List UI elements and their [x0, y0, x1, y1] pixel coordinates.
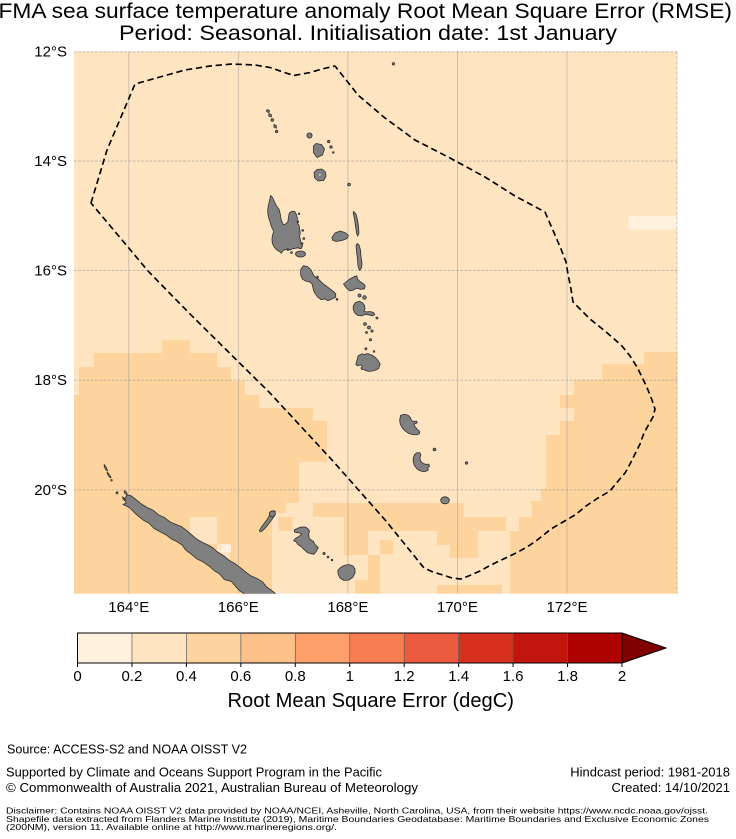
svg-text:1.6: 1.6 [503, 668, 524, 685]
svg-text:0: 0 [73, 668, 81, 685]
svg-text:16°S: 16°S [34, 263, 67, 280]
svg-text:0.4: 0.4 [176, 668, 197, 685]
svg-text:0.8: 0.8 [285, 668, 306, 685]
svg-text:Hindcast period: 1981-2018: Hindcast period: 1981-2018 [570, 764, 730, 779]
svg-text:Created: 14/10/2021: Created: 14/10/2021 [611, 780, 730, 795]
svg-text:FMA sea surface temperature an: FMA sea surface temperature anomaly Root… [0, 0, 732, 23]
svg-text:14°S: 14°S [34, 153, 67, 170]
svg-text:20°S: 20°S [34, 482, 67, 499]
svg-text:1.4: 1.4 [448, 668, 469, 685]
svg-text:1: 1 [346, 668, 354, 685]
svg-text:Supported by Climate and Ocean: Supported by Climate and Oceans Support … [6, 764, 382, 779]
svg-text:(200NM), version 11. Available: (200NM), version 11. Available online at… [6, 822, 337, 832]
svg-text:166°E: 166°E [218, 599, 259, 616]
svg-text:12°S: 12°S [34, 44, 67, 61]
svg-text:Root Mean Square Error (degC): Root Mean Square Error (degC) [228, 690, 515, 712]
svg-text:170°E: 170°E [437, 599, 478, 616]
svg-text:1.8: 1.8 [557, 668, 578, 685]
svg-text:2: 2 [618, 668, 626, 685]
svg-text:© Commonwealth of Australia 20: © Commonwealth of Australia 2021, Austra… [6, 780, 419, 795]
svg-text:0.6: 0.6 [230, 668, 251, 685]
svg-text:164°E: 164°E [108, 599, 149, 616]
svg-text:Source: ACCESS-S2 and NOAA OIS: Source: ACCESS-S2 and NOAA OISST V2 [7, 741, 247, 756]
svg-text:Period: Seasonal. Initialisati: Period: Seasonal. Initialisation date: 1… [119, 22, 618, 45]
svg-text:18°S: 18°S [34, 372, 67, 389]
svg-text:172°E: 172°E [546, 599, 587, 616]
svg-text:0.2: 0.2 [122, 668, 143, 685]
svg-text:1.2: 1.2 [394, 668, 415, 685]
svg-text:168°E: 168°E [327, 599, 368, 616]
